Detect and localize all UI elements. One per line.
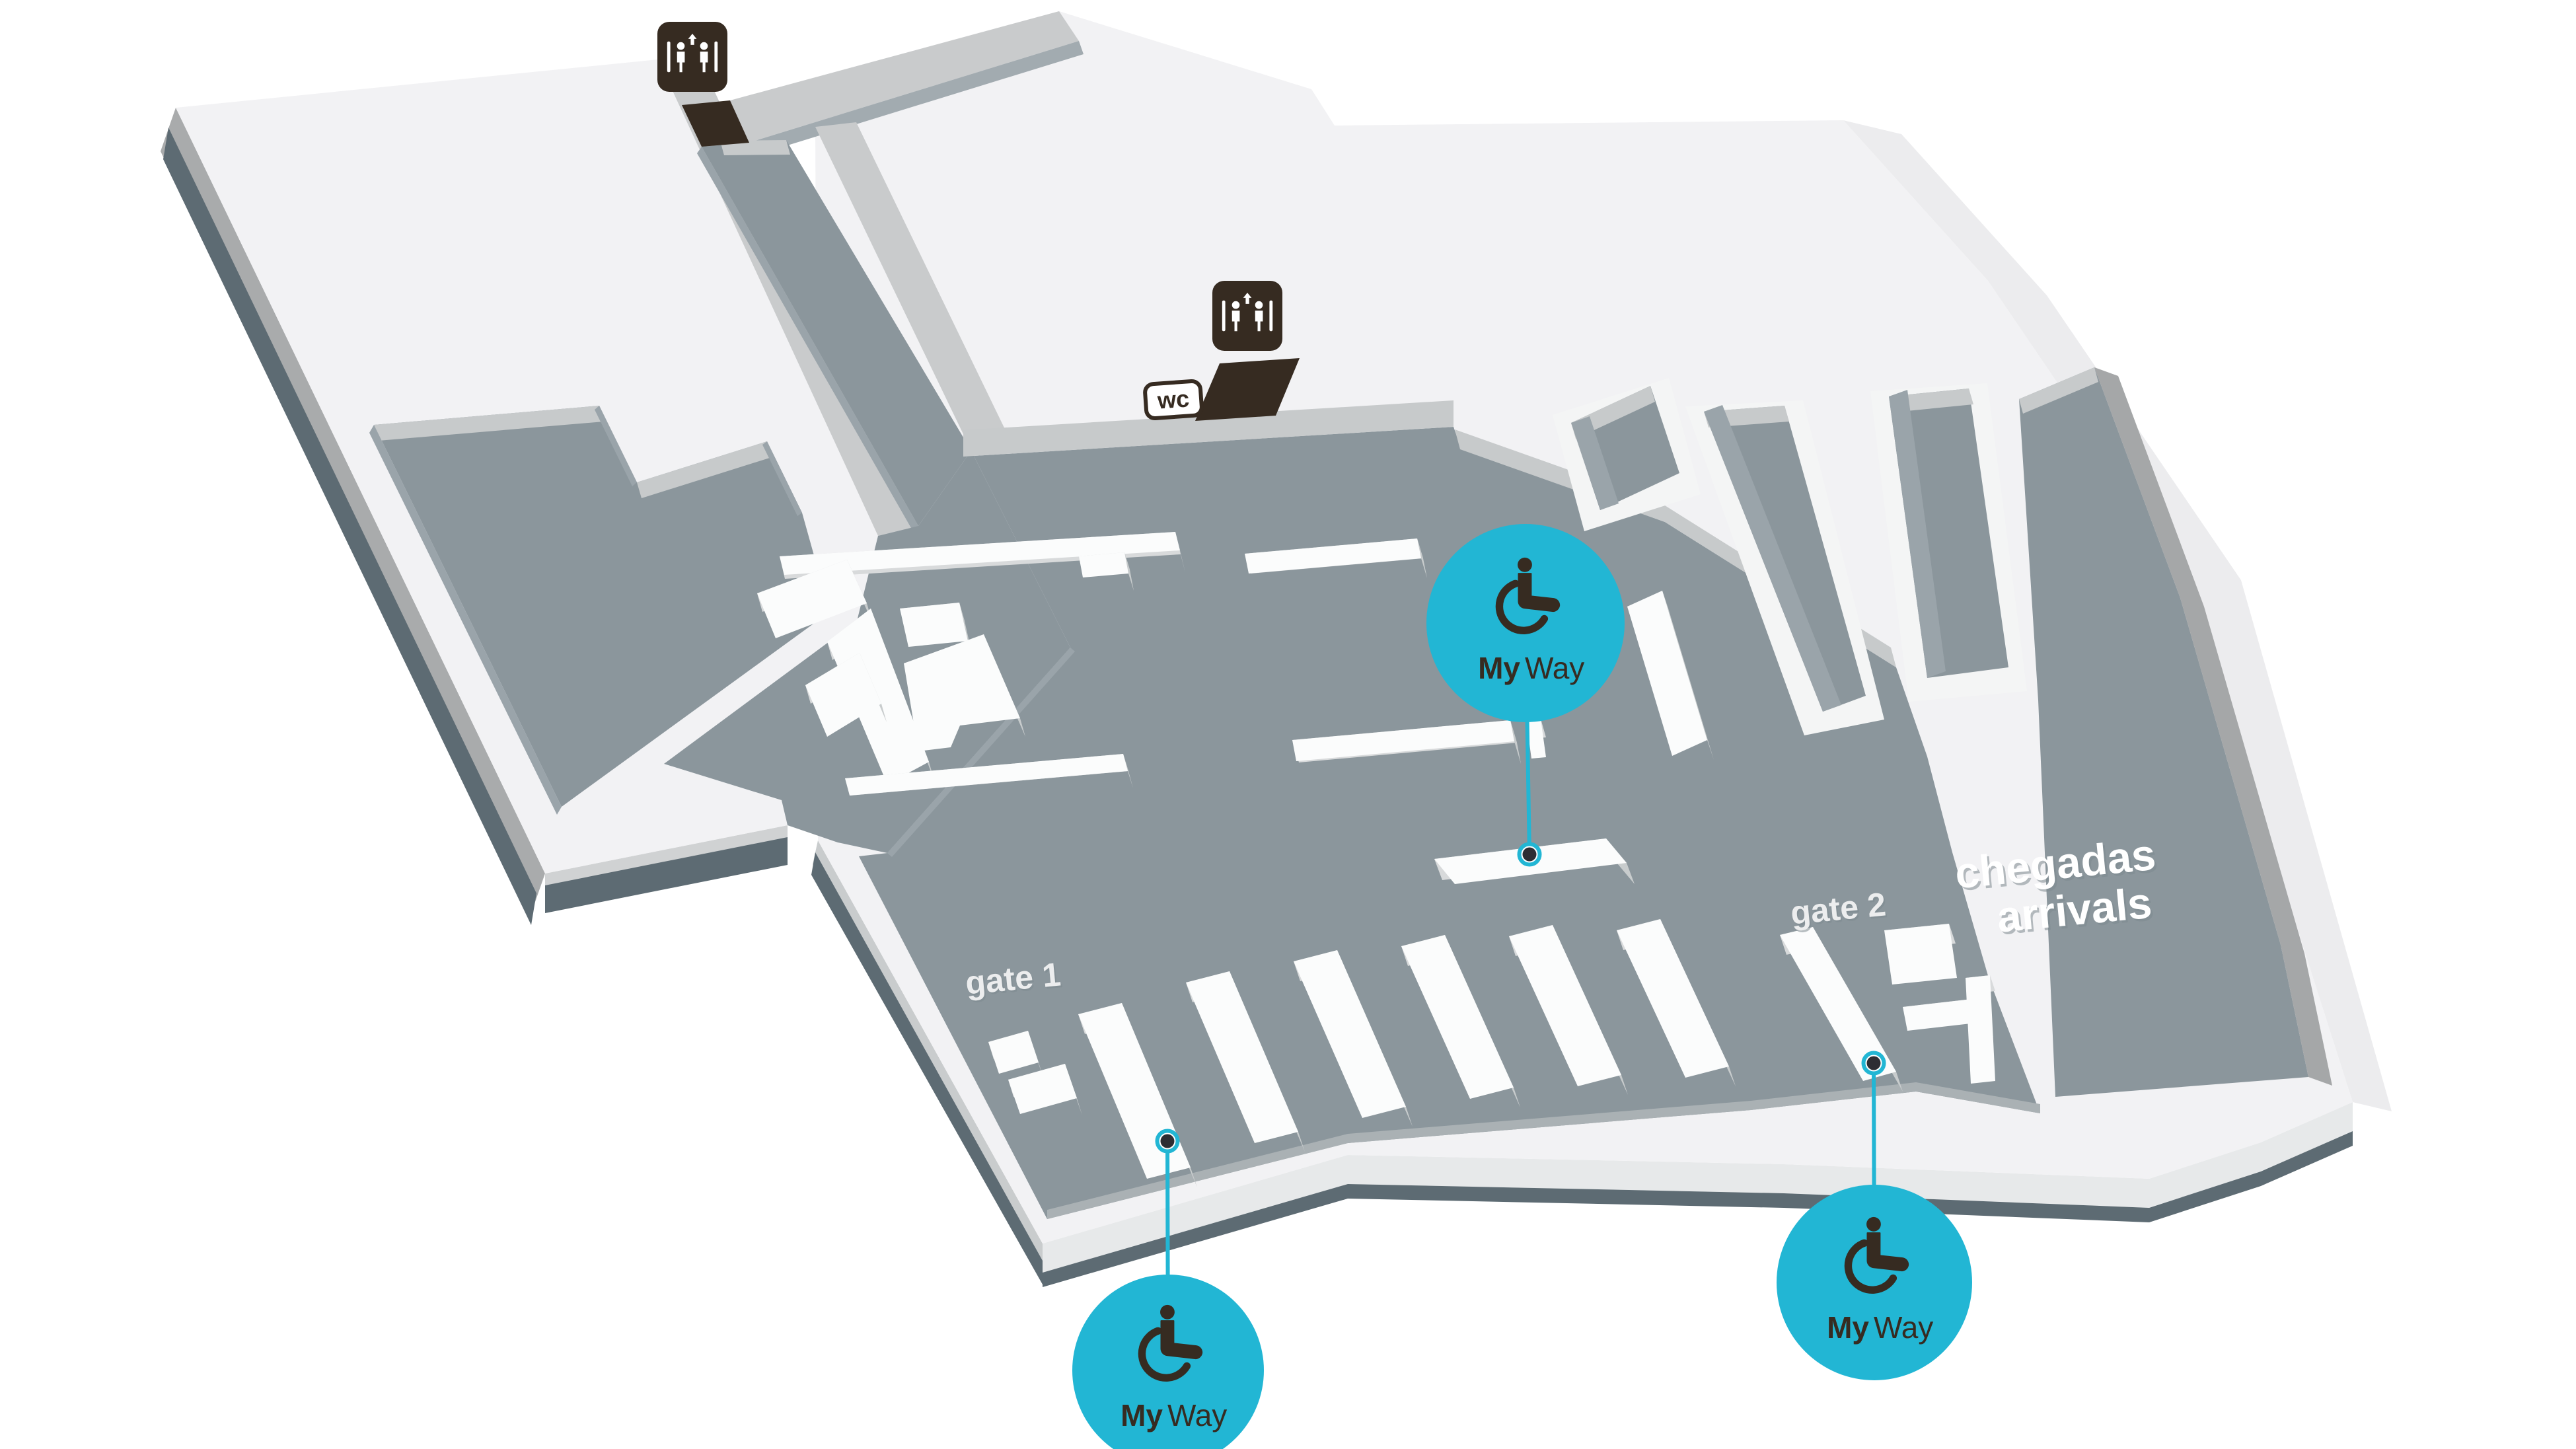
svg-text:Way: Way	[1525, 651, 1584, 685]
svg-text:My: My	[1827, 1310, 1869, 1345]
svg-text:My: My	[1478, 651, 1520, 685]
svg-text:Way: Way	[1167, 1398, 1227, 1432]
svg-text:wc: wc	[1156, 385, 1191, 414]
svg-text:Way: Way	[1874, 1310, 1933, 1345]
svg-text:My: My	[1121, 1398, 1163, 1432]
